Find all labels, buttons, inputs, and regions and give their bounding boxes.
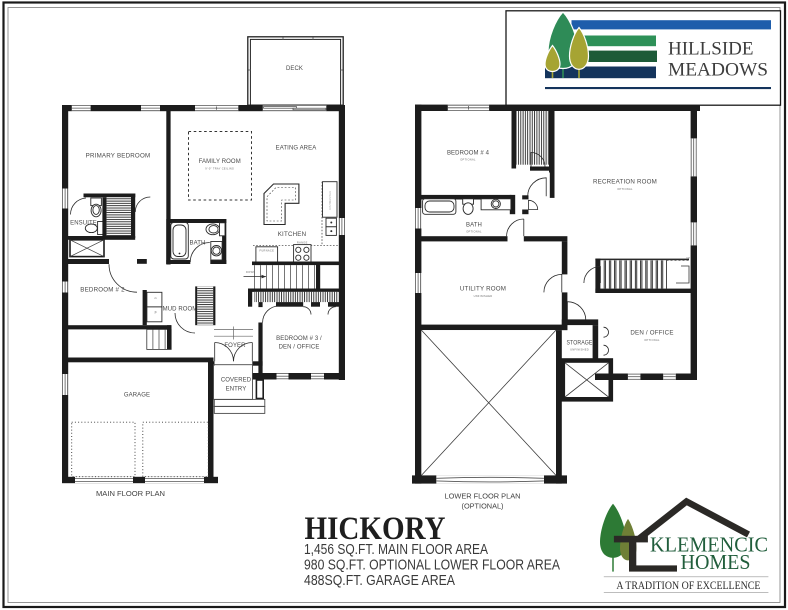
svg-text:DECK: DECK — [286, 66, 303, 72]
svg-text:MAIN FLOOR PLAN: MAIN FLOOR PLAN — [96, 491, 165, 498]
svg-text:488SQ.FT. GARAGE AREA: 488SQ.FT. GARAGE AREA — [304, 573, 455, 589]
svg-text:OPTIONAL: OPTIONAL — [644, 338, 660, 342]
svg-text:UNFINISHED: UNFINISHED — [474, 294, 493, 298]
svg-text:ENSUITE: ENSUITE — [70, 221, 97, 227]
svg-text:DOWN: DOWN — [246, 270, 255, 274]
svg-text:DEN / OFFICE: DEN / OFFICE — [279, 345, 320, 351]
svg-text:COVERED: COVERED — [221, 378, 252, 384]
svg-text:RANGE: RANGE — [297, 241, 308, 245]
svg-text:BEDROOM # 3 /: BEDROOM # 3 / — [276, 336, 322, 342]
svg-text:ENTRY: ENTRY — [226, 387, 247, 393]
svg-text:1,456 SQ.FT. MAIN FLOOR AREA: 1,456 SQ.FT. MAIN FLOOR AREA — [304, 542, 488, 558]
svg-text:9'-0" TRAY CEILING: 9'-0" TRAY CEILING — [205, 167, 234, 171]
svg-text:HILLSIDE: HILLSIDE — [668, 39, 753, 60]
svg-text:BATH: BATH — [466, 223, 482, 229]
svg-text:(OPTIONAL): (OPTIONAL) — [462, 504, 504, 511]
svg-text:FAMILY ROOM: FAMILY ROOM — [199, 159, 241, 165]
svg-text:A TRADITION OF EXCELLENCE: A TRADITION OF EXCELLENCE — [616, 580, 760, 592]
svg-text:GARAGE: GARAGE — [124, 393, 150, 399]
svg-text:MEADOWS: MEADOWS — [668, 60, 768, 81]
svg-text:HOMES: HOMES — [681, 550, 751, 574]
svg-text:980 SQ.FT. OPTIONAL LOWER FLOO: 980 SQ.FT. OPTIONAL LOWER FLOOR AREA — [304, 558, 560, 574]
svg-text:STORAGE: STORAGE — [567, 341, 593, 347]
svg-text:UP: UP — [686, 256, 690, 260]
svg-text:MUD ROOM: MUD ROOM — [163, 307, 198, 313]
svg-text:KITCHEN: KITCHEN — [278, 231, 307, 238]
svg-text:LOWER FLOOR PLAN: LOWER FLOOR PLAN — [445, 494, 521, 501]
svg-text:FURNACE: FURNACE — [259, 248, 274, 252]
svg-text:UTILITY ROOM: UTILITY ROOM — [460, 286, 506, 293]
svg-text:OPTIONAL: OPTIONAL — [466, 230, 482, 234]
svg-text:DISHWASHER: DISHWASHER — [329, 191, 332, 210]
svg-text:OPTIONAL: OPTIONAL — [617, 187, 633, 191]
svg-text:RECREATION ROOM: RECREATION ROOM — [593, 179, 657, 186]
svg-text:W: W — [154, 310, 158, 313]
svg-text:OPTIONAL: OPTIONAL — [460, 158, 476, 162]
svg-text:DEN / OFFICE: DEN / OFFICE — [630, 330, 673, 337]
svg-text:D: D — [154, 297, 158, 299]
svg-text:UNFINISHED: UNFINISHED — [570, 348, 589, 352]
svg-text:PRIMARY BEDROOM: PRIMARY BEDROOM — [86, 153, 151, 160]
svg-text:BEDROOM # 2: BEDROOM # 2 — [80, 287, 125, 294]
svg-text:BEDROOM # 4: BEDROOM # 4 — [447, 151, 490, 157]
svg-text:EATING AREA: EATING AREA — [276, 146, 317, 152]
